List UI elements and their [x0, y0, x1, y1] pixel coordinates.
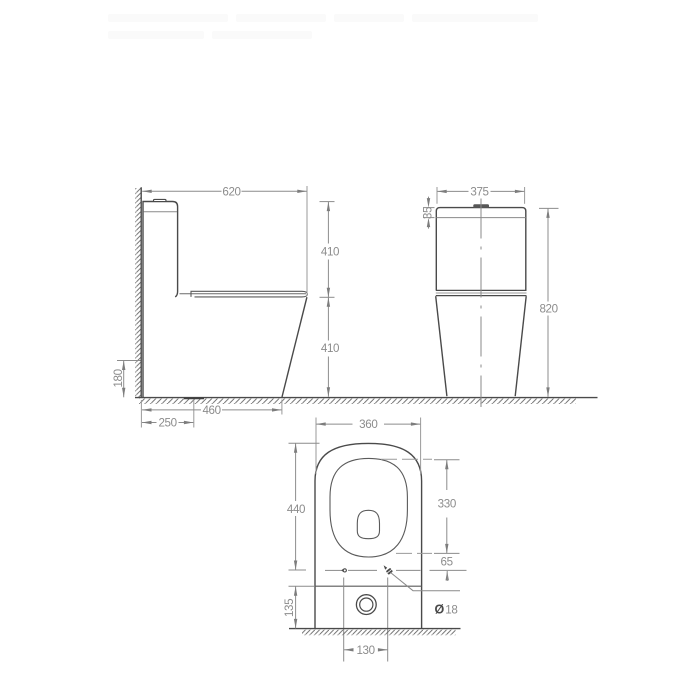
svg-text:375: 375 [470, 186, 488, 199]
svg-text:820: 820 [539, 303, 557, 316]
svg-text:65: 65 [440, 555, 452, 568]
svg-text:620: 620 [222, 185, 240, 198]
svg-text:360: 360 [359, 418, 377, 431]
svg-text:35: 35 [421, 207, 434, 219]
svg-text:250: 250 [158, 417, 176, 430]
svg-text:410: 410 [321, 342, 339, 355]
svg-text:130: 130 [356, 644, 374, 657]
svg-text:Ø18: Ø18 [435, 603, 458, 617]
svg-text:180: 180 [112, 369, 125, 387]
svg-text:460: 460 [202, 404, 220, 417]
svg-text:135: 135 [283, 599, 296, 617]
svg-text:410: 410 [321, 246, 339, 259]
svg-text:330: 330 [438, 498, 456, 511]
svg-text:440: 440 [287, 503, 305, 516]
